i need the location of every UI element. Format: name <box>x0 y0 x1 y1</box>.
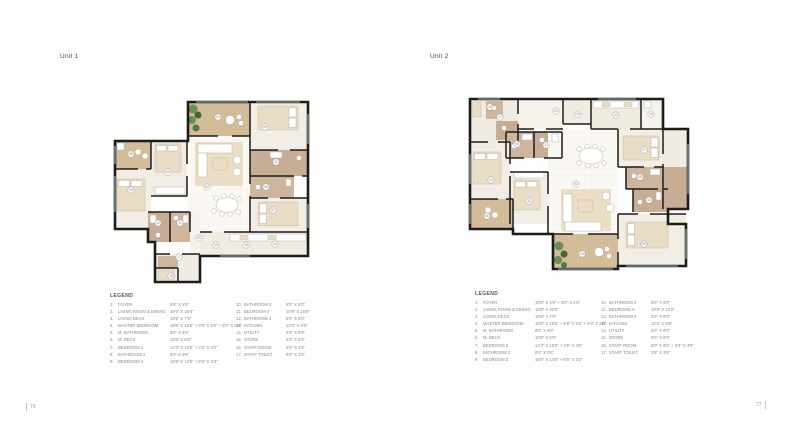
unit-2-floorplan: 1617051201151314070411020810060309 <box>458 84 708 289</box>
legend-row: 1.FOYER10'6" X 4'6" + 5'0" X 4'9" <box>475 301 601 305</box>
legend-item-dimensions: 18'6" X 16'6" + 8'9" X 5'6" + 6'0" X 2'0… <box>170 324 241 328</box>
legend-item-number: 15. <box>236 338 244 342</box>
legend-item-label: UTILITY <box>609 329 651 333</box>
legend-column: 1.FOYER10'6" X 4'6" + 5'0" X 4'9"2.LIVIN… <box>475 301 601 363</box>
legend-item-dimensions: 8'0" X 8'6" <box>535 329 554 333</box>
page-number-divider <box>26 403 27 411</box>
legend-row: 15.STORE5'0" X 6'0" <box>236 338 310 342</box>
legend-item-label: BEDROOM 4 <box>609 308 651 312</box>
legend-row: 3.LIVING DECK18'6" X 7'9" <box>475 315 601 319</box>
room-number-label: 05 <box>515 142 519 146</box>
legend-item-label: BEDROOM 3 <box>483 358 535 362</box>
legend-item-dimensions: 8'0" X 5'6" <box>170 353 189 357</box>
legend-item-dimensions: 8'0" X 5'6" <box>535 351 554 355</box>
legend-row: 11.BEDROOM 410'9" X 15'9" <box>236 310 310 314</box>
legend-item-label: STORE <box>609 336 651 340</box>
room-number-label: 11 <box>178 221 182 225</box>
legend-item-dimensions: 5'0" X 6'0" <box>286 338 305 342</box>
legend-item-dimensions: 18'6" X 5'9" <box>170 338 191 342</box>
unit-1-floorplan: 0603090504021008071211011513141716 <box>100 84 340 289</box>
legend-column: 10.BATHROOM 39'0" X 6'0"11.BEDROOM 410'9… <box>236 303 310 365</box>
page-number-divider <box>765 401 766 409</box>
legend-item-dimensions: 9'0" X 6'0" <box>651 301 670 305</box>
page-number-right: 77 <box>756 401 766 409</box>
room-number-label: 15 <box>214 243 218 247</box>
legend-row: 12.BATHROOM 45'0" X 8'0" <box>601 315 694 319</box>
room-number-label: 08 <box>638 175 642 179</box>
legend-item-label: LIVING DECK <box>483 315 535 319</box>
legend-item-number: 5. <box>475 329 483 333</box>
legend-item-label: STAFF TOILET <box>244 353 286 357</box>
room-number-label: 09 <box>263 125 267 129</box>
legend-row: 9.BEDROOM 315'6" X 12'6" + 8'6" X 3'3" <box>110 360 236 364</box>
legend-item-label: UTILITY <box>244 331 286 335</box>
legend-item-number: 2. <box>475 308 483 312</box>
page-number-value: 76 <box>30 404 36 410</box>
legend-item-number: 6. <box>475 336 483 340</box>
legend-item-label: STAFF TOILET <box>609 351 651 355</box>
legend-item-label: LIVING ROOM & DINING <box>483 308 535 312</box>
legend-row: 16.STAFF ROOM6'0" X 6'6" + 3'3" X 3'9" <box>601 344 694 348</box>
legend-row: 7.BEDROOM 212'3" X 10'9" + 3'6" X 4'0" <box>475 344 601 348</box>
legend-item-dimensions: 12'9" X 8'9" <box>651 322 672 326</box>
legend-item-label: STAFF ROOM <box>244 346 286 350</box>
legend-item-number: 17. <box>236 353 244 357</box>
legend-item-number: 9. <box>110 360 118 364</box>
legend-item-number: 13. <box>601 322 609 326</box>
room-number-label: 07 <box>271 208 275 212</box>
legend-item-number: 8. <box>110 353 118 357</box>
legend-item-dimensions: 18'6" X 5'9" <box>535 336 556 340</box>
legend-item-number: 9. <box>475 358 483 362</box>
legend-item-label: BATHROOM 2 <box>483 351 535 355</box>
legend-item-label: BATHROOM 2 <box>118 353 170 357</box>
room-number-label: 13 <box>244 243 248 247</box>
legend-row: 17.STAFF TOILET5'0" X 4'6" <box>236 353 310 357</box>
legend-item-dimensions: 5'0" X 8'0" <box>651 315 670 319</box>
legend-row: 3.LIVING DECK18'6" X 7'9" <box>110 317 236 321</box>
legend-row: 4.MASTER BEDROOM18'6" X 16'6" + 8'9" X 5… <box>475 322 601 326</box>
unit-1-floorplan-svg: 0603090504021008071211011513141716 <box>100 84 340 284</box>
legend-item-label: BATHROOM 4 <box>609 315 651 319</box>
room-number-label: 14 <box>649 112 653 116</box>
legend-row: 4.MASTER BEDROOM18'6" X 16'6" + 8'9" X 5… <box>110 324 236 328</box>
room-number-label: 06 <box>485 214 489 218</box>
legend-item-label: KITCHEN <box>609 322 651 326</box>
room-number-label: 08 <box>264 185 268 189</box>
legend-item-dimensions: 5'0" X 8'0" <box>286 317 305 321</box>
room-number-label: 12 <box>156 221 160 225</box>
legend-item-dimensions: 10'9" X 15'9" <box>286 310 310 314</box>
unit-1-title: Unit 1 <box>60 53 78 60</box>
legend-item-dimensions: 5'0" X 8'0" <box>286 331 305 335</box>
legend-item-number: 7. <box>475 344 483 348</box>
legend-item-label: BEDROOM 2 <box>483 344 535 348</box>
legend-item-label: STAFF ROOM <box>609 344 651 348</box>
legend-row: 14.UTILITY5'0" X 8'0" <box>601 329 694 333</box>
legend-item-number: 8. <box>475 351 483 355</box>
legend-item-number: 5. <box>110 331 118 335</box>
legend-item-number: 12. <box>236 317 244 321</box>
room-number-label: 14 <box>273 242 277 246</box>
legend-item-dimensions: 5'0" X 8'0" <box>651 329 670 333</box>
legend-item-label: MASTER BEDROOM <box>483 322 535 326</box>
room-number-label: 06 <box>129 152 133 156</box>
legend-item-number: 7. <box>110 346 118 350</box>
legend-row: 2.LIVING ROOM & DINING18'6" X 28'6" <box>110 310 236 314</box>
room-number-label: 10 <box>274 160 278 164</box>
legend-item-number: 3. <box>110 317 118 321</box>
room-number-label: 07 <box>642 148 646 152</box>
legend-item-number: 16. <box>236 346 244 350</box>
unit-2-title: Unit 2 <box>430 53 448 60</box>
legend-title: LEGEND <box>110 293 310 299</box>
legend-column: 10.BATHROOM 39'0" X 6'0"11.BEDROOM 410'9… <box>601 301 694 363</box>
legend-item-dimensions: 9'0" X 4'9" <box>286 346 305 350</box>
page-number-value: 77 <box>756 402 762 408</box>
legend-row: 7.BEDROOM 212'3" X 10'9" + 3'6" X 4'0" <box>110 346 236 350</box>
legend-item-dimensions: 5'0" X 4'6" <box>286 353 305 357</box>
room-number-label: 12 <box>544 143 548 147</box>
legend-row: 1.FOYER5'6" X 8'9" <box>110 303 236 307</box>
room-number-label: 15 <box>576 112 580 116</box>
legend-item-dimensions: 8'0" X 8'6" <box>170 331 189 335</box>
room-number-label: 01 <box>197 236 201 240</box>
legend-row: 10.BATHROOM 39'0" X 6'0" <box>601 301 694 305</box>
legend-item-dimensions: 12'3" X 10'9" + 3'6" X 4'0" <box>170 346 217 350</box>
unit-1-legend: LEGEND 1.FOYER5'6" X 8'9"2.LIVING ROOM &… <box>110 293 310 364</box>
legend-item-number: 13. <box>236 324 244 328</box>
legend-column: 1.FOYER5'6" X 8'9"2.LIVING ROOM & DINING… <box>110 303 236 365</box>
legend-item-label: BATHROOM 3 <box>609 301 651 305</box>
legend-item-dimensions: 12'9" X 8'9" <box>286 324 307 328</box>
legend-title: LEGEND <box>475 291 694 297</box>
legend-row: 5.M. BATHROOM8'0" X 8'6" <box>475 329 601 333</box>
room-number-label: 16 <box>169 274 173 278</box>
legend-row: 8.BATHROOM 28'0" X 5'6" <box>110 353 236 357</box>
legend-item-label: STORE <box>244 338 286 342</box>
legend-item-number: 11. <box>236 310 244 314</box>
legend-item-number: 4. <box>475 322 483 326</box>
room-number-label: 17 <box>498 115 502 119</box>
legend-item-dimensions: 10'6" X 4'6" + 5'0" X 4'9" <box>535 301 580 305</box>
legend-item-dimensions: 6'0" X 6'6" + 3'3" X 3'9" <box>651 344 694 348</box>
legend-row: 11.BEDROOM 410'9" X 15'9" <box>601 308 694 312</box>
brochure-spread: Unit 1 <box>0 0 800 430</box>
legend-item-number: 4. <box>110 324 118 328</box>
room-number-label: 13 <box>614 113 618 117</box>
legend-item-dimensions: 10'9" X 15'9" <box>651 308 675 312</box>
legend-row: 2.LIVING ROOM & DINING18'6" X 30'0" <box>475 308 601 312</box>
page-number-left: 76 <box>26 403 36 411</box>
room-number-label: 11 <box>527 199 531 203</box>
legend-item-dimensions: 15'6" X 14'6" + 6'9" X 3'3" <box>535 358 582 362</box>
legend-item-label: LIVING DECK <box>118 317 170 321</box>
legend-item-dimensions: 18'6" X 7'9" <box>535 315 556 319</box>
legend-item-number: 2. <box>110 310 118 314</box>
room-number-label: 02 <box>205 185 209 189</box>
legend-item-dimensions: 18'6" X 7'9" <box>170 317 191 321</box>
legend-row: 13.KITCHEN12'9" X 8'9" <box>236 324 310 328</box>
legend-item-dimensions: 15'6" X 12'6" + 8'6" X 3'3" <box>170 360 217 364</box>
room-number-label: 05 <box>166 170 170 174</box>
room-number-label: 03 <box>216 115 220 119</box>
legend-item-label: BEDROOM 4 <box>244 310 286 314</box>
legend-item-number: 14. <box>601 329 609 333</box>
legend-item-dimensions: 5'0" X 6'0" <box>651 336 670 340</box>
legend-row: 5.M. BATHROOM8'0" X 8'6" <box>110 331 236 335</box>
legend-item-label: FOYER <box>118 303 170 307</box>
legend-row: 17.STAFF TOILET3'9" X 3'9" <box>601 351 694 355</box>
legend-row: 15.STORE5'0" X 6'0" <box>601 336 694 340</box>
room-number-label: 17 <box>177 255 181 259</box>
room-number-label: 10 <box>647 198 651 202</box>
legend-item-label: LIVING ROOM & DINING <box>118 310 170 314</box>
legend-row: 14.UTILITY5'0" X 8'0" <box>236 331 310 335</box>
legend-item-dimensions: 18'6" X 28'6" <box>170 310 194 314</box>
legend-row: 10.BATHROOM 39'0" X 6'0" <box>236 303 310 307</box>
legend-item-label: MASTER BEDROOM <box>118 324 170 328</box>
legend-item-label: BEDROOM 2 <box>118 346 170 350</box>
legend-row: 6.M. DECK18'6" X 5'9" <box>475 336 601 340</box>
legend-item-number: 16. <box>601 344 609 348</box>
legend-item-label: FOYER <box>483 301 535 305</box>
legend-item-label: BATHROOM 3 <box>244 303 286 307</box>
legend-row: 9.BEDROOM 315'6" X 14'6" + 6'9" X 3'3" <box>475 358 601 362</box>
legend-row: 6.M. DECK18'6" X 5'9" <box>110 338 236 342</box>
legend-item-label: M. BATHROOM <box>118 331 170 335</box>
legend-item-number: 14. <box>236 331 244 335</box>
legend-item-dimensions: 9'0" X 6'0" <box>286 303 305 307</box>
legend-item-number: 10. <box>601 301 609 305</box>
legend-row: 13.KITCHEN12'9" X 8'9" <box>601 322 694 326</box>
legend-item-label: M. DECK <box>118 338 170 342</box>
legend-item-label: M. DECK <box>483 336 535 340</box>
legend-item-dimensions: 18'6" X 30'0" <box>535 308 559 312</box>
legend-item-label: BEDROOM 3 <box>118 360 170 364</box>
room-number-label: 01 <box>554 109 558 113</box>
unit-2-floorplan-svg: 1617051201151314070411020810060309 <box>458 84 708 284</box>
legend-item-dimensions: 12'3" X 10'9" + 3'6" X 4'0" <box>535 344 582 348</box>
legend-item-number: 11. <box>601 308 609 312</box>
legend-item-label: M. BATHROOM <box>483 329 535 333</box>
legend-item-number: 12. <box>601 315 609 319</box>
room-number-label: 03 <box>580 252 584 256</box>
legend-item-number: 15. <box>601 336 609 340</box>
legend-item-dimensions: 5'6" X 8'9" <box>170 303 189 307</box>
legend-item-label: KITCHEN <box>244 324 286 328</box>
legend-item-dimensions: 3'9" X 3'9" <box>651 351 670 355</box>
legend-item-number: 1. <box>475 301 483 305</box>
room-number-label: 16 <box>488 105 492 109</box>
legend-item-number: 3. <box>475 315 483 319</box>
legend-row: 16.STAFF ROOM9'0" X 4'9" <box>236 346 310 350</box>
legend-item-number: 6. <box>110 338 118 342</box>
legend-row: 12.BATHROOM 45'0" X 8'0" <box>236 317 310 321</box>
legend-item-label: BATHROOM 4 <box>244 317 286 321</box>
room-number-label: 04 <box>489 178 493 182</box>
room-number-label: 02 <box>574 182 578 186</box>
room-number-label: 04 <box>129 188 133 192</box>
legend-item-number: 1. <box>110 303 118 307</box>
legend-item-number: 10. <box>236 303 244 307</box>
legend-row: 8.BATHROOM 28'0" X 5'6" <box>475 351 601 355</box>
unit-2-legend: LEGEND 1.FOYER10'6" X 4'6" + 5'0" X 4'9"… <box>475 291 694 362</box>
legend-item-dimensions: 18'6" X 16'6" + 8'9" X 5'6" + 6'0" X 2'0… <box>535 322 606 326</box>
legend-item-number: 17. <box>601 351 609 355</box>
room-number-label: 09 <box>642 242 646 246</box>
